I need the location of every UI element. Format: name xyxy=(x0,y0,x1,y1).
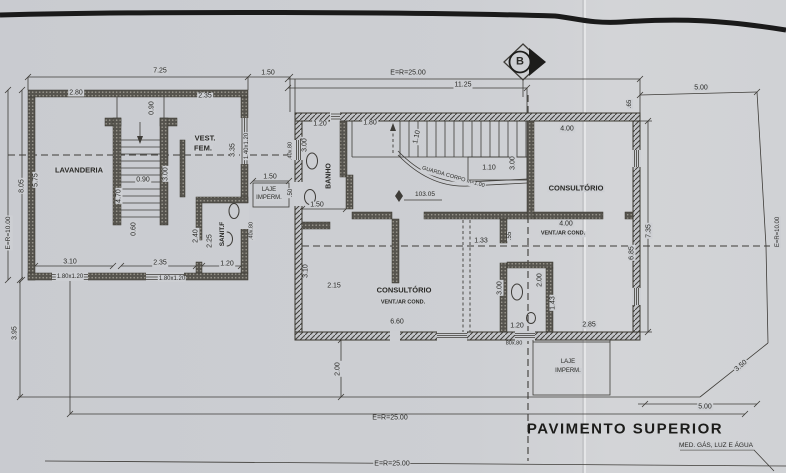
dim-stair-110-h: 1.10 xyxy=(481,165,497,172)
dim-yard-200: 2.00 xyxy=(335,361,342,377)
dim-stair-300: 3.00 xyxy=(510,155,517,171)
floor-plan-scan: PAVIMENTO SUPERIOR MED. GÁS, LUZ E ÁGUA … xyxy=(0,0,786,473)
room-consultorio-bottom: CONSULTÓRIO xyxy=(376,286,433,294)
laje-left-line2: IMPERM. xyxy=(255,195,283,201)
dim-consult2-215: 2.15 xyxy=(326,283,342,290)
win-40x80-a: .40x.80 xyxy=(249,221,255,241)
dim-site-bottom-2: E=R=25.00 xyxy=(373,461,410,468)
dim-sanit-width: 1.20 xyxy=(219,261,235,268)
dim-stair-110-v: 1.10 xyxy=(412,129,422,146)
room-lavanderia: LAVANDERIA xyxy=(54,166,104,174)
dim-lb-wall-a: 2.80 xyxy=(68,90,84,97)
section-marker-label: B xyxy=(515,57,525,68)
dim-stair-bottom: 0.60 xyxy=(131,221,138,237)
dim-bottom-500: 5.00 xyxy=(697,404,713,411)
dim-consult-top-400: 4.00 xyxy=(559,126,575,133)
dim-vest-depth: 3.35 xyxy=(230,142,237,158)
dim-lb-bottom-a: 3.10 xyxy=(62,259,78,266)
dim-diag-350: 3.50 xyxy=(733,358,749,373)
laje-right-line1: LAJE xyxy=(560,359,576,365)
dim-site-right: E=R=10.00 xyxy=(775,216,781,248)
win-vest-size: 1.40x1.20 xyxy=(244,132,250,160)
dim-site-bottom-1: E=R=25.00 xyxy=(371,415,408,422)
annotation-layer: PAVIMENTO SUPERIOR MED. GÁS, LUZ E ÁGUA … xyxy=(0,0,786,473)
dim-site-left: E=R=10.00 xyxy=(6,216,13,251)
win-lb-bottom-b: 1.80x1.20 xyxy=(158,276,186,282)
dim-lb-wall-b: 2.35 xyxy=(197,93,213,100)
dim-consult2-left: 3.10 xyxy=(303,263,310,279)
note-guarda-corpo: GUARDA CORPO m=1.00 xyxy=(420,166,486,190)
dim-stair-mid: 0.90 xyxy=(135,177,151,184)
dim-rb-right-inner: 6.85 xyxy=(629,245,636,261)
dim-stair-width-top: 0.90 xyxy=(149,100,156,116)
dim-55: .55 xyxy=(507,231,513,241)
laje-left-line1: LAJE xyxy=(261,187,277,193)
dim-laje-left-width: 1.50 xyxy=(262,174,278,181)
room-vent-bottom: VENT./AR COND. xyxy=(380,300,426,306)
dim-yard-left: 3.95 xyxy=(12,325,19,341)
dim-133: 1.33 xyxy=(473,238,489,245)
dim-lb-top-gap: 1.50 xyxy=(260,70,276,77)
win-40x80-b: .40x.80 xyxy=(288,141,294,161)
level-marker-value: 103.05 xyxy=(414,192,436,199)
dim-sanit-a: 2.40 xyxy=(193,228,200,244)
page-title: PAVIMENTO SUPERIOR xyxy=(526,422,724,437)
dim-rb-right-outer: 7.35 xyxy=(646,223,653,239)
dim-wc-200: 2.00 xyxy=(537,272,544,288)
dim-right-wing-285: 2.85 xyxy=(581,322,597,329)
dim-lb-bottom-b: 2.35 xyxy=(152,260,168,267)
dim-stair-right: 3.00 xyxy=(163,166,170,182)
dim-lb-left-outer: 8.05 xyxy=(19,178,26,194)
dim-consult2-width: 6.60 xyxy=(389,319,405,326)
room-vest-fem-line1: VEST. xyxy=(194,134,217,142)
win-lb-bottom-a: 1.80x1.20 xyxy=(56,274,84,280)
dim-site-top: E=R=25.00 xyxy=(389,70,426,77)
dim-rb-left-300: 3.00 xyxy=(302,137,309,153)
dim-rb-top-b: 1.80 xyxy=(362,120,378,127)
utility-note: MED. GÁS, LUZ E ÁGUA xyxy=(678,443,754,450)
room-consultorio-top: CONSULTÓRIO xyxy=(548,184,605,192)
dim-stair-run: 4.70 xyxy=(116,188,123,204)
room-vest-fem-line2: FEM. xyxy=(193,144,213,152)
laje-right-line2: IMPERM. xyxy=(554,368,582,374)
room-banho: BANHO xyxy=(326,162,333,190)
dim-sanit-b: 2.25 xyxy=(207,233,214,249)
dim-lb-left-inner: 5.75 xyxy=(33,172,40,188)
dim-top-right-500: 5.00 xyxy=(693,85,709,92)
dim-laje-50: .50 xyxy=(288,188,294,198)
win-80x80: 80x.80 xyxy=(505,341,524,347)
dim-wc-door-120: 1.20 xyxy=(509,323,525,330)
room-sanit-f: SANIT.F xyxy=(220,221,227,248)
dim-65: .65 xyxy=(627,99,633,109)
dim-banho-width: 1.50 xyxy=(309,202,325,209)
dim-rb-top-a: 1.20 xyxy=(312,121,328,128)
room-vent-top: VENT./AR COND. xyxy=(540,231,586,237)
dim-lb-top-width: 7.25 xyxy=(152,68,168,75)
dim-wc-143: 1.43 xyxy=(550,295,557,311)
dim-vent-top-400: 4.00 xyxy=(558,221,574,228)
dim-top-1125: 11.25 xyxy=(454,82,473,89)
dim-wc-300: 3.00 xyxy=(497,280,504,296)
